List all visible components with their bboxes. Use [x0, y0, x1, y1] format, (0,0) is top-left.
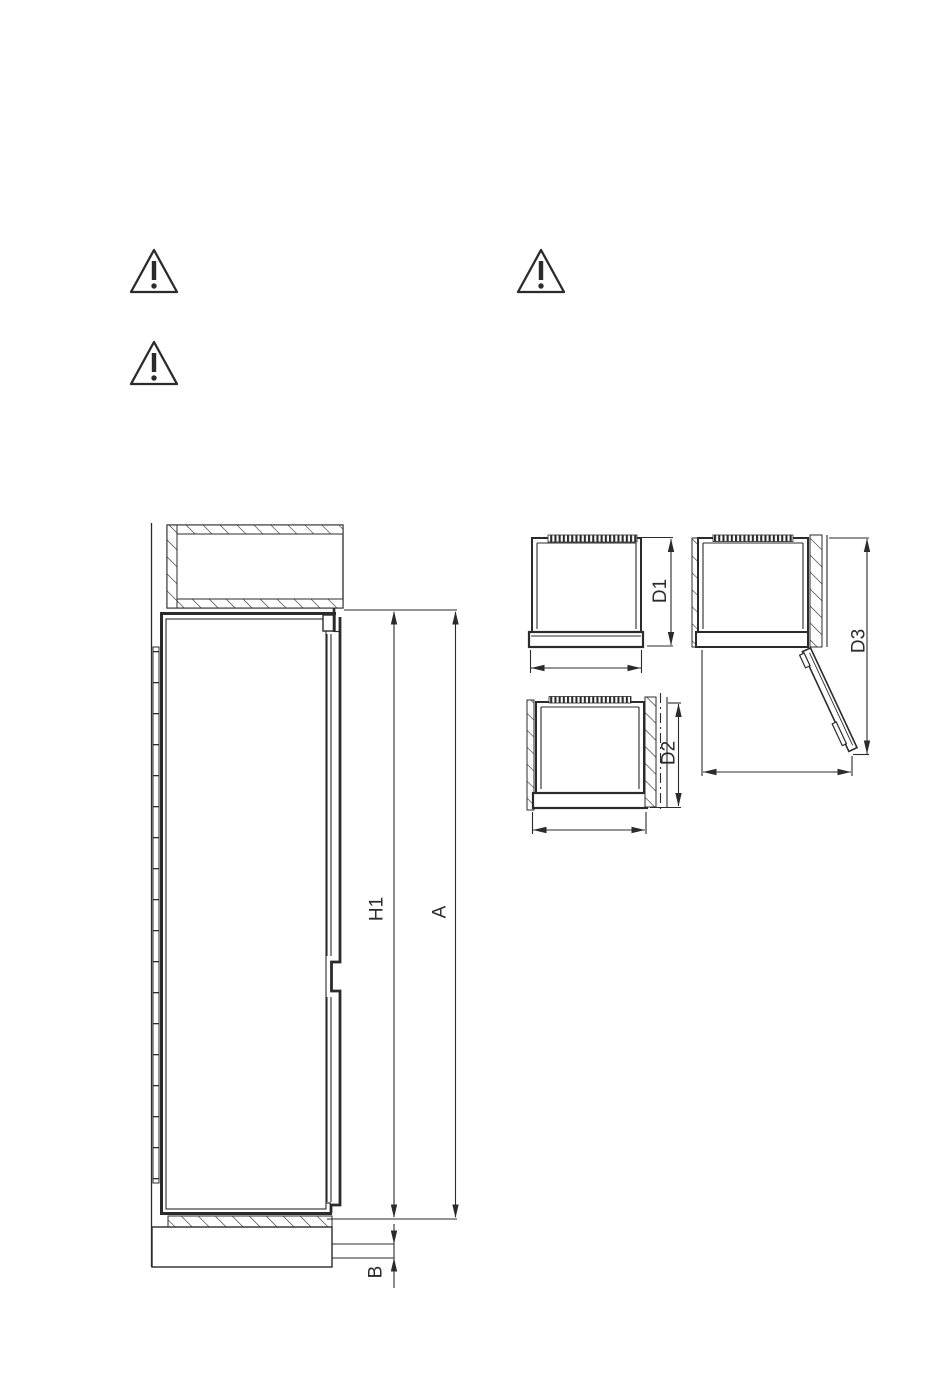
dimension-label-d1: D1: [650, 579, 671, 603]
dimension-label-b: B: [366, 1266, 387, 1279]
side-view-drawing: [152, 523, 459, 1288]
manual-page: H1 A B D1 D2 D3: [0, 0, 950, 1374]
condenser-band: [548, 535, 637, 542]
open-door: [799, 648, 857, 753]
dimension-d1-width: [531, 650, 642, 673]
dimension-label-d2: D2: [659, 741, 680, 765]
warning-triangle-icon: [131, 250, 177, 292]
dimension-label-d3: D3: [849, 629, 870, 653]
condenser-band: [713, 535, 793, 542]
right-wall: [810, 535, 822, 647]
bottom-hatch-strip: [168, 1216, 332, 1227]
dimension-d2-width: [533, 812, 647, 834]
door-front-strip: [529, 632, 643, 647]
plinth: [152, 1227, 332, 1267]
condenser-band: [549, 697, 631, 704]
top-view-d3: [692, 535, 870, 776]
cabinet-front-band: [696, 632, 808, 647]
installation-dimensions-diagram: H1 A B D1 D2 D3: [0, 0, 950, 1374]
door-front-strip: [533, 793, 647, 808]
dimension-label-a: A: [430, 905, 451, 918]
warning-triangle-icon: [131, 342, 177, 384]
condenser-strip: [153, 647, 159, 1183]
dimension-label-h1: H1: [367, 897, 388, 921]
refrigerator-body: [152, 612, 336, 1267]
warning-triangle-icon: [518, 250, 564, 292]
dimension-d3-width: [702, 650, 852, 776]
top-cabinet-section: [167, 525, 343, 608]
right-wall: [645, 697, 656, 807]
dimension-a: [452, 611, 458, 1218]
